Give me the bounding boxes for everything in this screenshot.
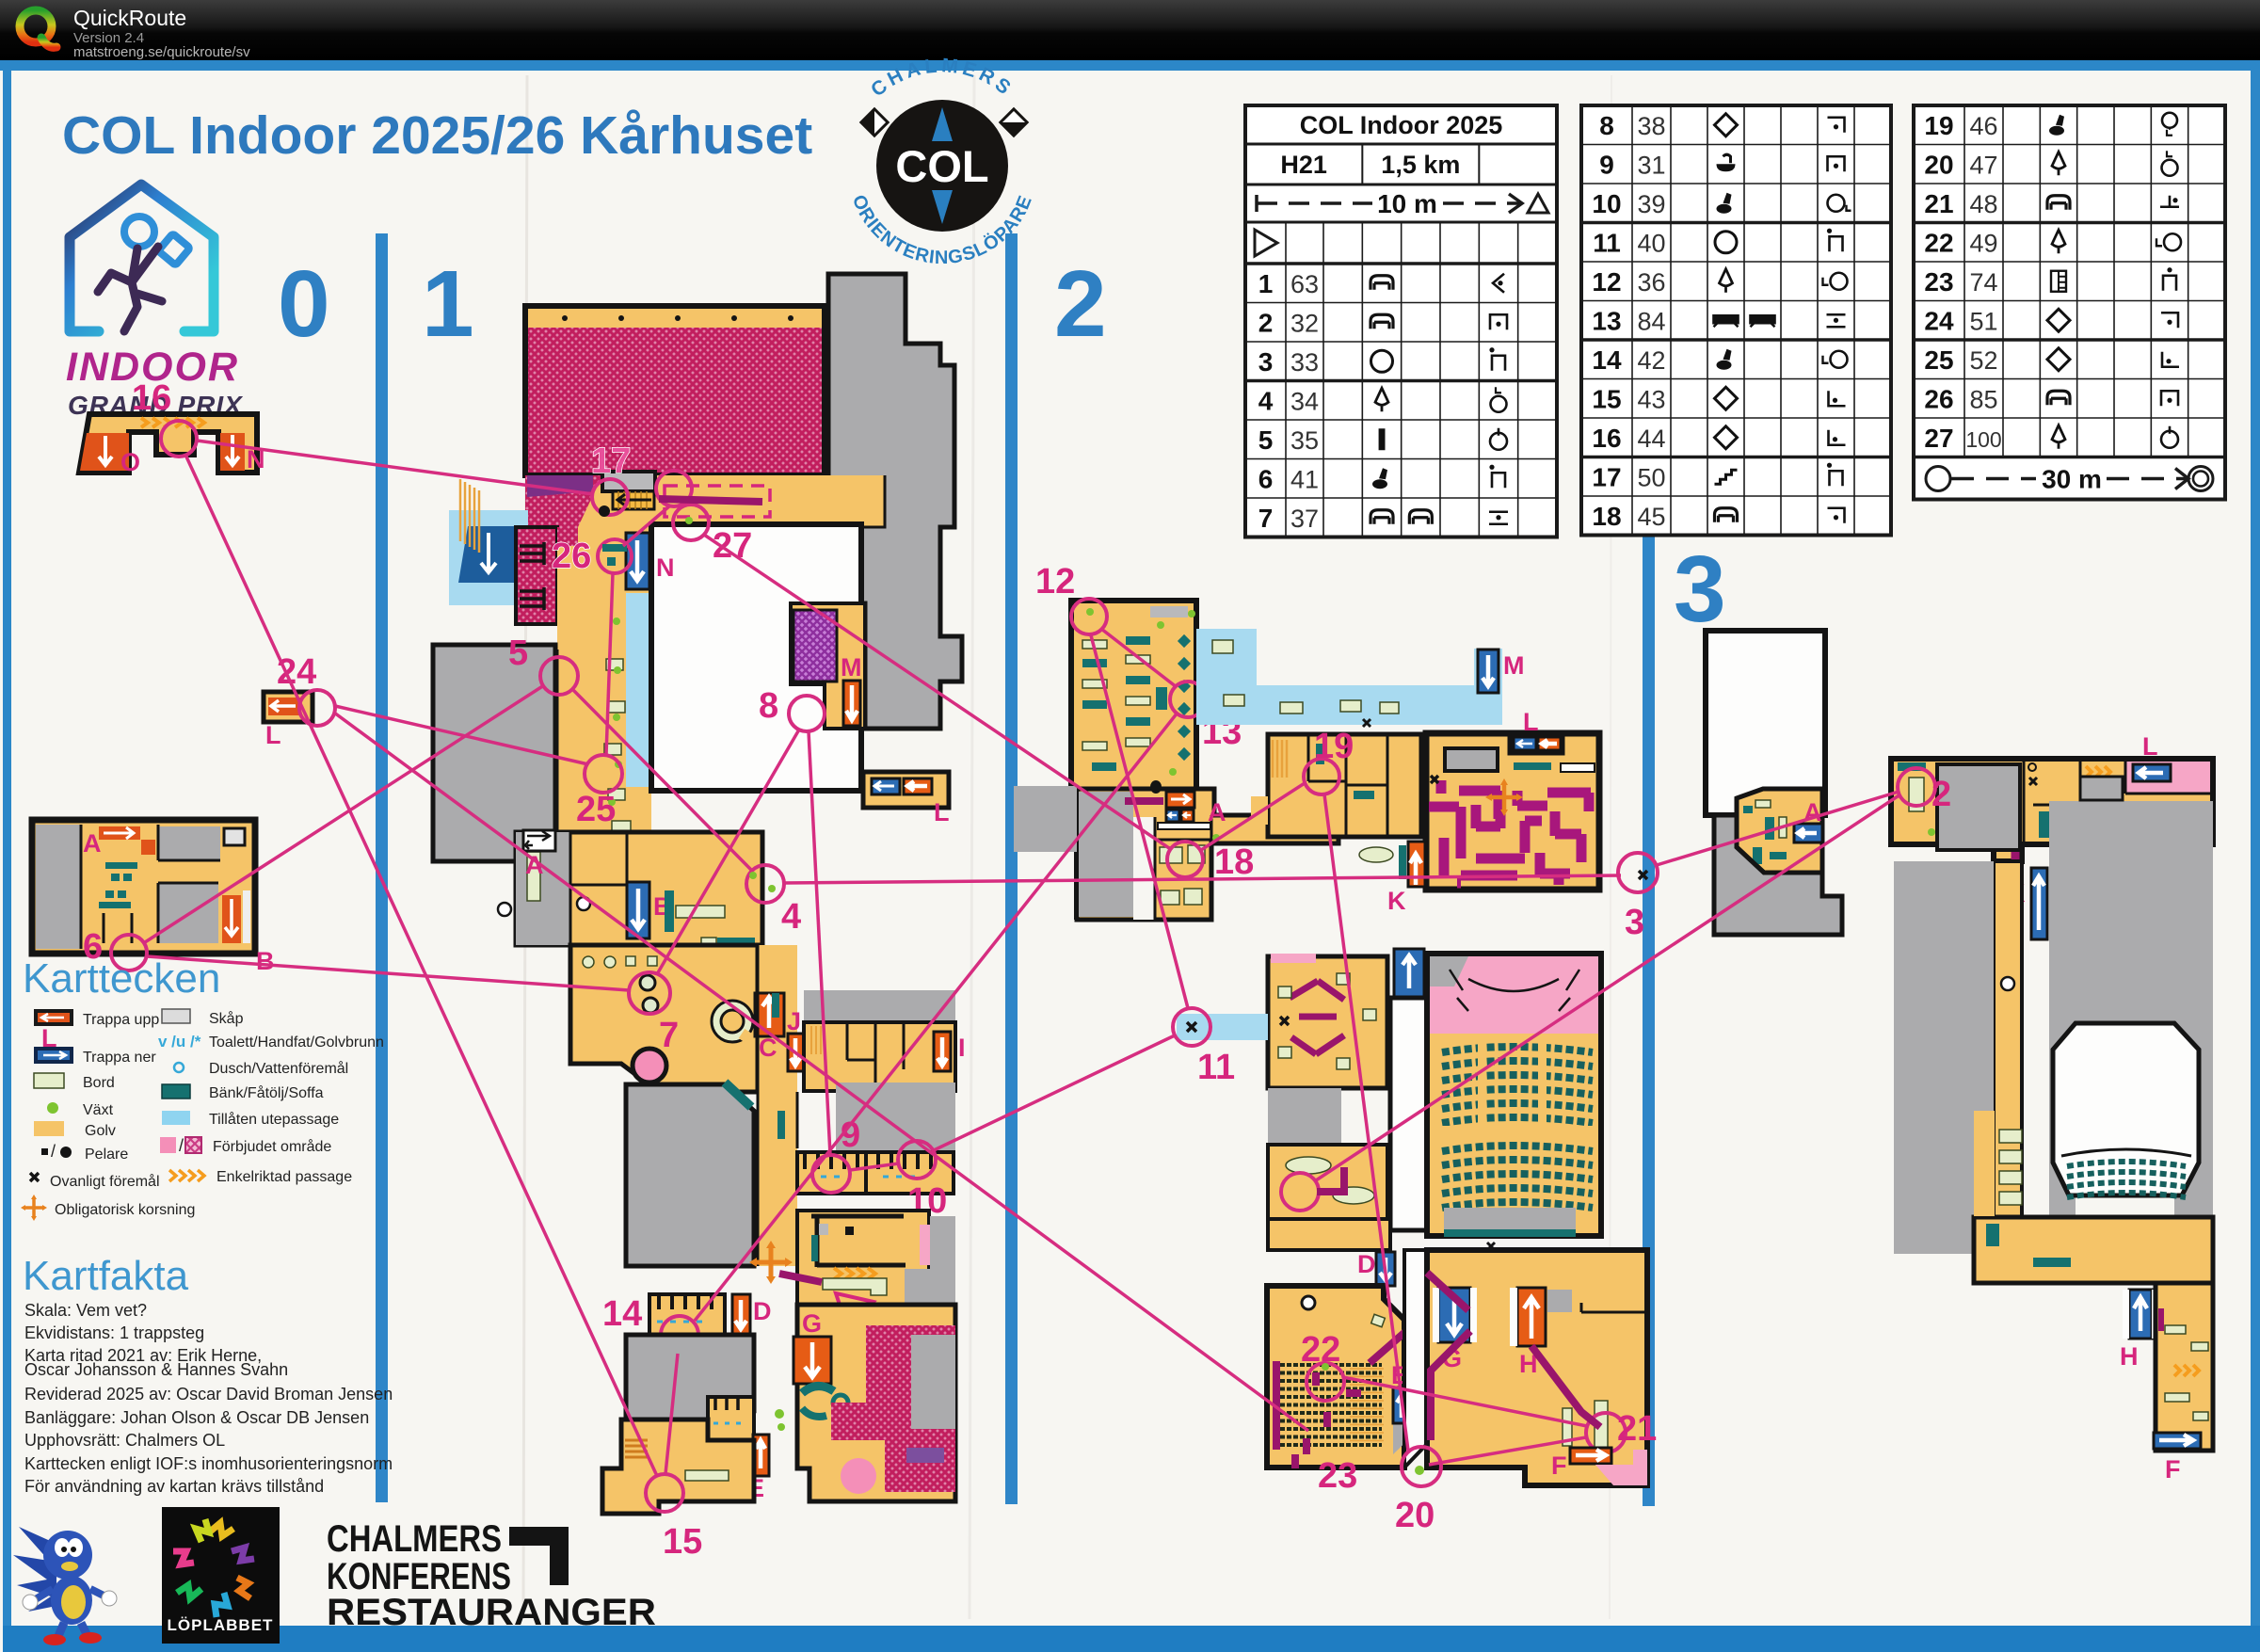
svg-text:34: 34 [1290,387,1319,415]
svg-text:/: / [179,1136,184,1155]
svg-text:D: D [753,1297,772,1325]
svg-text:32: 32 [1290,309,1319,337]
svg-text:26: 26 [552,537,591,576]
svg-text:Dusch/Vattenföremål: Dusch/Vattenföremål [209,1060,348,1077]
svg-text:19: 19 [1924,111,1953,140]
svg-text:17: 17 [591,441,631,481]
svg-text:43: 43 [1637,385,1665,413]
svg-text:G: G [802,1309,822,1338]
svg-text:5: 5 [508,634,528,673]
svg-text:8: 8 [1599,111,1614,140]
svg-text:23: 23 [1318,1456,1357,1496]
svg-text:48: 48 [1969,190,1997,218]
svg-text:M: M [1503,651,1525,680]
svg-text:12: 12 [1592,267,1621,297]
svg-text:37: 37 [1290,505,1319,533]
svg-text:35: 35 [1290,426,1319,455]
svg-text:3: 3 [1258,347,1274,377]
svg-text:7: 7 [659,1016,679,1055]
svg-text:B: B [256,947,275,975]
svg-text:2: 2 [1054,251,1107,357]
svg-text:22: 22 [1924,228,1953,257]
svg-text:L: L [934,798,950,826]
svg-text:A: A [1803,798,1822,826]
svg-text:51: 51 [1969,307,1997,335]
svg-text:74: 74 [1969,268,1997,297]
svg-text:30 m: 30 m [2042,465,2102,494]
svg-text:Skåp: Skåp [209,1010,244,1027]
svg-text:23: 23 [1924,267,1953,297]
svg-text:Ovanligt föremål: Ovanligt föremål [50,1173,160,1190]
svg-text:33: 33 [1290,348,1319,377]
svg-text:39: 39 [1637,190,1665,218]
svg-text:Kartfakta: Kartfakta [23,1253,189,1299]
svg-text:10 m: 10 m [1377,189,1437,218]
svg-text:25: 25 [576,790,616,829]
svg-text:49: 49 [1969,229,1997,257]
svg-text:I: I [1378,425,1386,456]
svg-text:J: J [787,1007,801,1035]
svg-text:44: 44 [1637,425,1665,453]
svg-text:24: 24 [277,652,316,692]
svg-text:4: 4 [781,897,801,937]
svg-text:Bord: Bord [83,1075,115,1091]
svg-text:100: 100 [1965,427,2001,452]
svg-text:14: 14 [1592,345,1622,375]
svg-text:L: L [265,721,281,749]
svg-text:0: 0 [278,251,330,357]
svg-text:Trappa ner: Trappa ner [83,1050,156,1066]
svg-text:15: 15 [1592,384,1621,413]
svg-text:COL Indoor 2025/26 Kårhuset: COL Indoor 2025/26 Kårhuset [62,105,812,166]
svg-text:RESTAURANGER: RESTAURANGER [327,1592,656,1633]
svg-text:CHALMERS: CHALMERS [327,1518,502,1560]
svg-text:16: 16 [1592,424,1621,453]
svg-text:Skala: Vem vet?: Skala: Vem vet? [24,1301,147,1320]
svg-text:Förbjudet område: Förbjudet område [213,1138,331,1155]
svg-text:Pelare: Pelare [85,1147,128,1163]
svg-text:11: 11 [1197,1048,1235,1087]
svg-text:20: 20 [1395,1496,1435,1535]
svg-text:Växt: Växt [83,1102,114,1118]
svg-text:F: F [1551,1452,1567,1480]
svg-text:52: 52 [1969,346,1997,375]
svg-text:45: 45 [1637,503,1665,531]
svg-text:84: 84 [1637,307,1665,335]
svg-text:18: 18 [1592,502,1621,531]
svg-text:21: 21 [1924,189,1953,218]
svg-text:Upphovsrätt: Chalmers OL: Upphovsrätt: Chalmers OL [24,1431,225,1450]
svg-text:16: 16 [132,378,171,418]
svg-text:6: 6 [1258,464,1274,493]
svg-text:46: 46 [1969,112,1997,140]
svg-text:27: 27 [1924,424,1953,453]
svg-text:Golv: Golv [85,1123,116,1139]
svg-text:Bänk/Fåtölj/Soffa: Bänk/Fåtölj/Soffa [209,1084,324,1101]
svg-text:20: 20 [1924,150,1953,179]
svg-text:1: 1 [422,251,474,357]
svg-text:D: D [1357,1250,1376,1278]
svg-text:L: L [1523,708,1539,736]
svg-text:L: L [2142,732,2158,761]
svg-text:12: 12 [1035,562,1075,601]
svg-text:H21: H21 [1280,151,1327,179]
svg-text:M: M [841,653,862,682]
svg-text:18: 18 [1214,842,1254,882]
svg-text:38: 38 [1637,112,1665,140]
svg-text:10: 10 [1592,189,1621,218]
svg-text:Enkelriktad passage: Enkelriktad passage [216,1169,352,1185]
svg-text:5: 5 [1258,425,1274,455]
svg-text:15: 15 [663,1522,702,1562]
svg-text:1: 1 [1258,269,1274,298]
svg-text:8: 8 [759,686,778,726]
svg-text:2: 2 [1931,775,1951,814]
svg-text:Toalett/Handfat/Golvbrunn: Toalett/Handfat/Golvbrunn [209,1035,384,1051]
svg-text:v /u /*: v /u /* [158,1033,201,1051]
svg-text:9: 9 [1599,150,1614,179]
svg-text:COL Indoor 2025: COL Indoor 2025 [1300,111,1503,139]
svg-text:13: 13 [1592,306,1621,335]
svg-text:14: 14 [602,1294,642,1334]
svg-text:2: 2 [1258,308,1274,337]
svg-text:/: / [51,1142,56,1161]
svg-text:63: 63 [1290,270,1319,298]
svg-text:36: 36 [1637,268,1665,297]
svg-text:Tillåten utepassage: Tillåten utepassage [209,1111,339,1128]
svg-text:7: 7 [1258,504,1274,533]
svg-text:3: 3 [1674,537,1726,642]
svg-text:50: 50 [1637,463,1665,491]
svg-text:Banläggare: Johan Olson & Osca: Banläggare: Johan Olson & Oscar DB Jense… [24,1408,369,1427]
svg-text:19: 19 [1314,727,1354,766]
svg-text:N: N [656,553,675,582]
svg-text:41: 41 [1290,465,1319,493]
svg-text:Karttecken: Karttecken [23,955,220,1002]
svg-text:17: 17 [1592,462,1621,491]
svg-text:Karttecken enligt IOF:s inomhu: Karttecken enligt IOF:s inomhusorienteri… [24,1454,393,1473]
svg-text:Reviderad 2025 av: Oscar David: Reviderad 2025 av: Oscar David Broman Je… [24,1385,393,1403]
svg-text:25: 25 [1924,345,1953,375]
svg-text:40: 40 [1637,229,1665,257]
svg-text:85: 85 [1969,385,1997,413]
svg-text:31: 31 [1637,151,1665,179]
svg-text:COL: COL [895,141,988,191]
svg-text:Ekvidistans: 1 trappsteg: Ekvidistans: 1 trappsteg [24,1323,204,1342]
svg-text:47: 47 [1969,151,1997,179]
svg-text:QuickRoute: QuickRoute [73,6,186,30]
svg-text:A: A [83,829,102,858]
svg-text:22: 22 [1301,1330,1340,1370]
svg-text:H: H [2120,1342,2139,1371]
svg-text:42: 42 [1637,346,1665,375]
svg-text:Trappa upp: Trappa upp [83,1012,159,1028]
svg-text:F: F [2165,1455,2181,1484]
svg-text:11: 11 [1593,228,1621,257]
svg-text:LÖPLABBET: LÖPLABBET [168,1616,274,1634]
svg-text:Obligatorisk korsning: Obligatorisk korsning [55,1202,195,1218]
svg-text:I: I [958,1034,966,1062]
svg-text:21: 21 [1617,1409,1657,1449]
svg-text:O: O [120,448,140,476]
svg-text:3: 3 [1625,903,1644,942]
svg-text:Oscar Johansson & Hannes Svahn: Oscar Johansson & Hannes Svahn [24,1360,288,1379]
svg-text:K: K [1387,887,1406,915]
svg-text:26: 26 [1924,384,1953,413]
svg-text:1,5 km: 1,5 km [1381,151,1460,179]
svg-text:matstroeng.se/quickroute/sv: matstroeng.se/quickroute/sv [73,44,250,60]
svg-text:För användning av kartan krävs: För användning av kartan krävs tillstånd [24,1477,324,1496]
svg-text:4: 4 [1258,386,1274,415]
svg-text:24: 24 [1924,306,1954,335]
